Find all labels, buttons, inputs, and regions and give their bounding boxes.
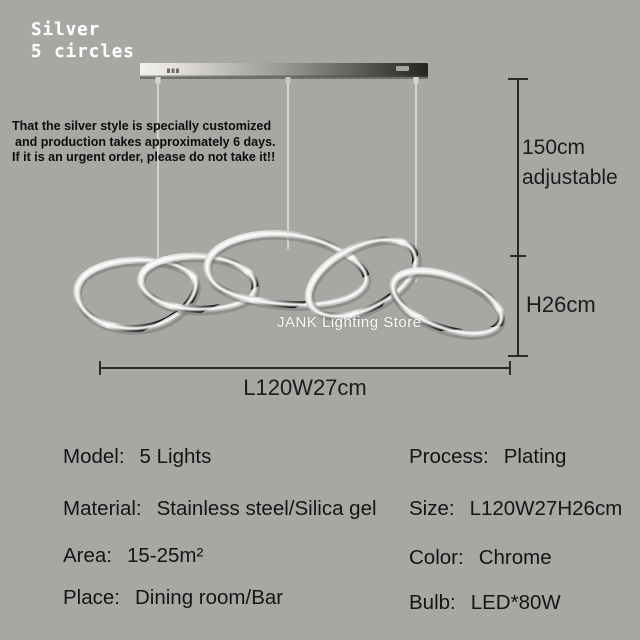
warning-line1: That the silver style is specially custo…	[12, 119, 276, 135]
spec-row-area: Area:15-25m²	[63, 544, 203, 568]
spec-row-process: Process:Plating	[409, 445, 566, 469]
ceiling-bar	[140, 63, 428, 84]
warning-note: That the silver style is specially custo…	[12, 119, 276, 166]
chandelier-ring-3	[207, 234, 368, 308]
spec-value: L120W27H26cm	[470, 497, 623, 520]
height-dimension-label: H26cm	[526, 292, 596, 318]
spec-label: Bulb:	[409, 591, 456, 614]
spec-row-model: Model:5 Lights	[63, 445, 211, 469]
spec-value: Stainless steel/Silica gel	[157, 497, 377, 520]
drop-dimension-value: 150cm	[522, 133, 618, 163]
style-badge-line2: 5 circles	[31, 41, 135, 63]
wire-connector	[156, 77, 161, 84]
dimension-line-horizontal	[100, 361, 510, 375]
drop-dimension-label: 150cm adjustable	[522, 133, 618, 193]
store-watermark: JANK Lighting Store	[277, 314, 422, 331]
wire-connector	[414, 77, 419, 84]
wire-connector	[286, 77, 291, 84]
spec-label: Size:	[409, 497, 455, 520]
spec-value: Chrome	[479, 546, 552, 569]
bar-vent-detail	[167, 69, 179, 74]
style-badge: Silver 5 circles	[31, 19, 135, 63]
spec-value: 5 Lights	[140, 445, 212, 468]
warning-line2: and production takes approximately 6 day…	[12, 135, 276, 151]
drop-dimension-note: adjustable	[522, 163, 618, 193]
spec-row-color: Color:Chrome	[409, 546, 552, 570]
chandelier-ring-1	[77, 260, 197, 331]
spec-label: Color:	[409, 546, 464, 569]
spec-row-material: Material:Stainless steel/Silica gel	[63, 497, 377, 521]
product-image: Silver 5 circles That the silver style i…	[0, 0, 640, 640]
chandelier-ring-5	[385, 258, 510, 349]
style-badge-line1: Silver	[31, 19, 135, 41]
warning-line3: If it is an urgent order, please do not …	[12, 150, 276, 166]
spec-label: Material:	[63, 497, 142, 520]
spec-value: Dining room/Bar	[135, 586, 283, 609]
spec-label: Area:	[63, 544, 112, 567]
spec-value: Plating	[504, 445, 567, 468]
spec-label: Model:	[63, 445, 125, 468]
suspension-wires	[158, 83, 416, 282]
spec-label: Place:	[63, 586, 120, 609]
spec-row-place: Place:Dining room/Bar	[63, 586, 283, 610]
spec-value: 15-25m²	[127, 544, 203, 567]
spec-row-bulb: Bulb:LED*80W	[409, 591, 561, 615]
spec-value: LED*80W	[471, 591, 561, 614]
spec-row-size: Size:L120W27H26cm	[409, 497, 622, 521]
bar-brand-sticker	[396, 66, 409, 71]
dimension-line-vertical	[508, 79, 528, 356]
spec-label: Process:	[409, 445, 489, 468]
length-dimension-label: L120W27cm	[100, 375, 510, 401]
